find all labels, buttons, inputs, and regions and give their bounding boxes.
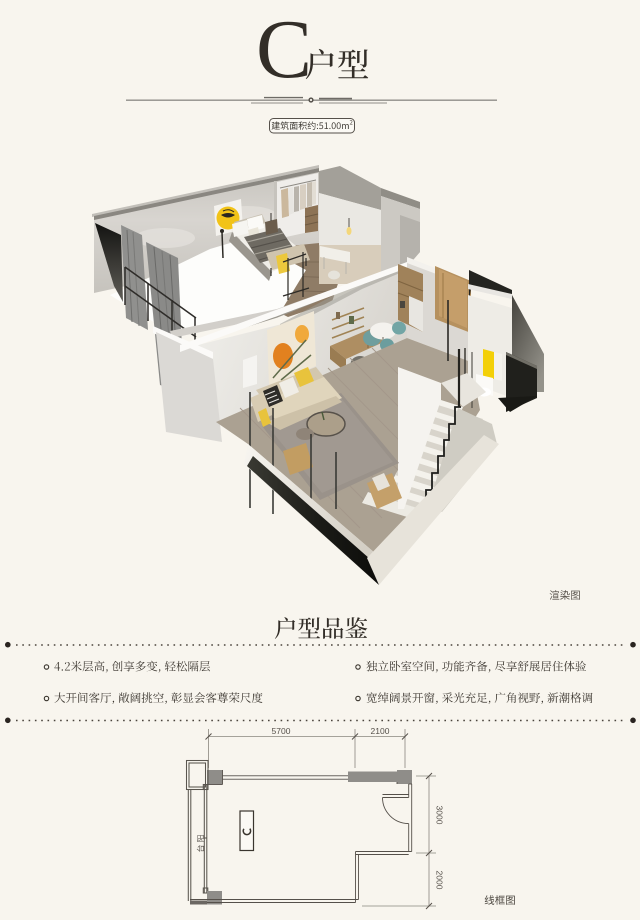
svg-text:2100: 2100: [371, 726, 390, 736]
svg-text:3000: 3000: [435, 806, 445, 825]
svg-text:5700: 5700: [272, 726, 291, 736]
svg-text:2000: 2000: [435, 871, 445, 890]
svg-text:C: C: [256, 3, 312, 96]
